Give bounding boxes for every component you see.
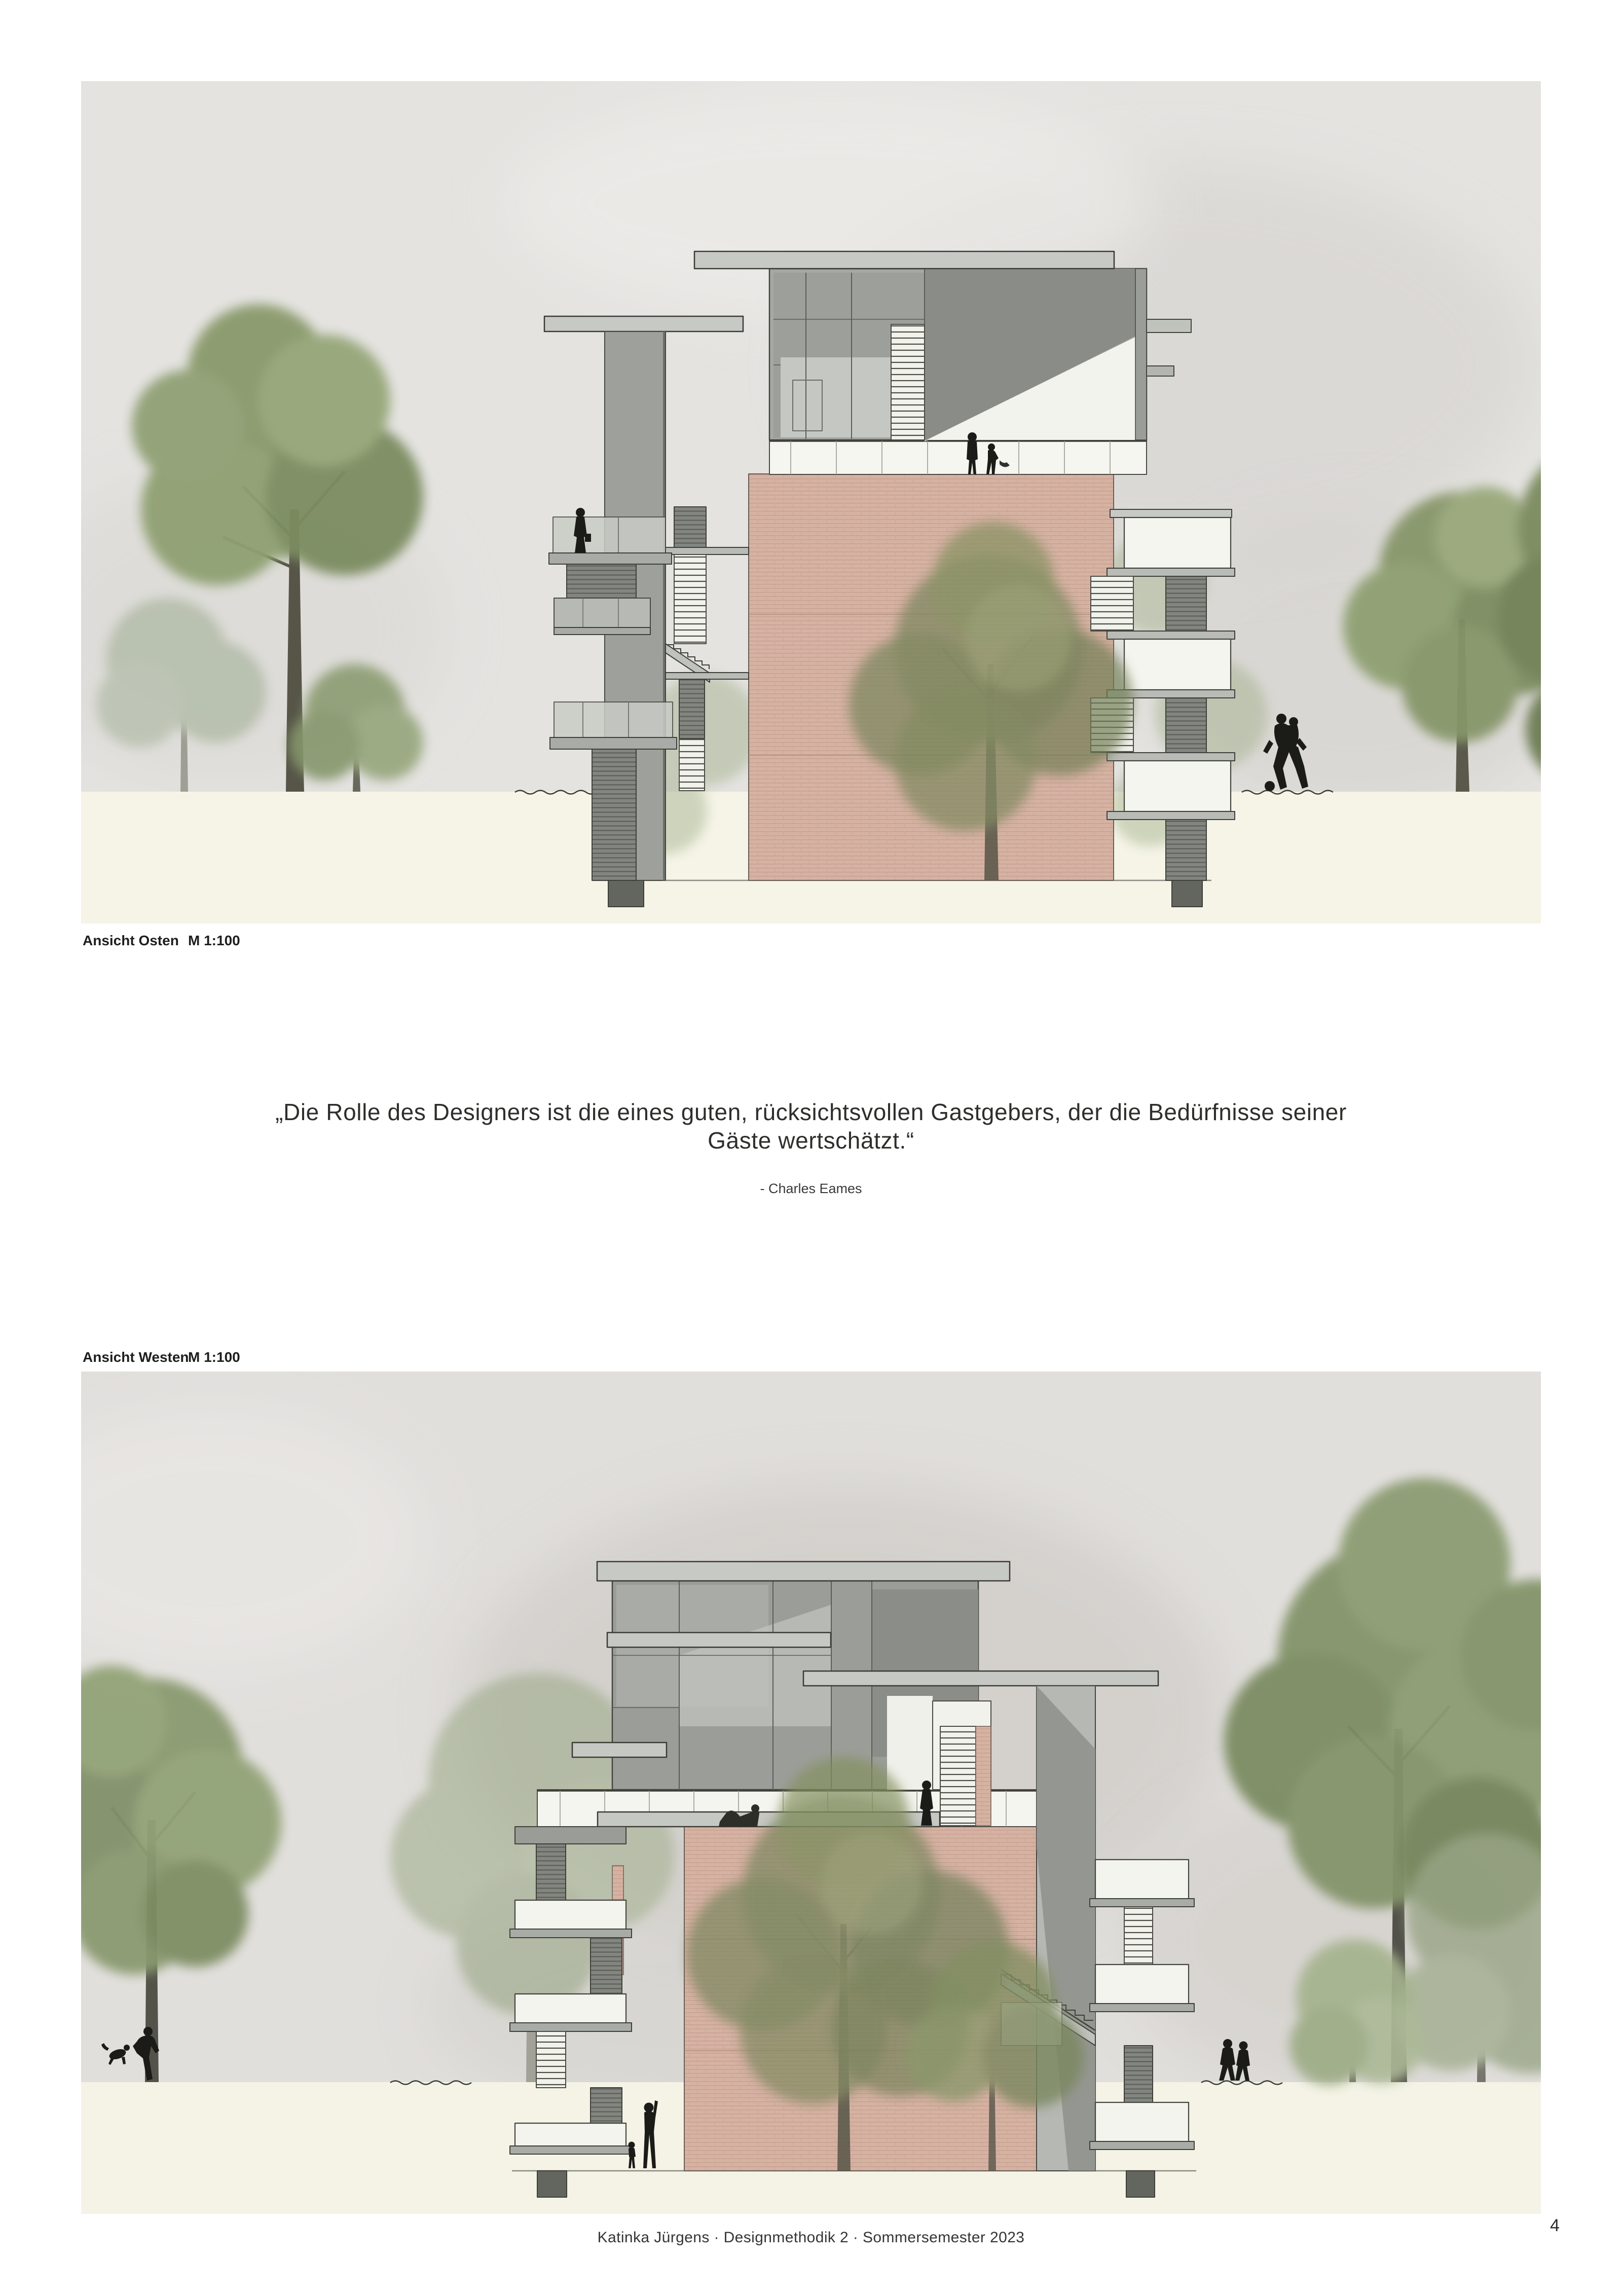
building-east xyxy=(544,251,1235,907)
cantilever-slab-east xyxy=(544,316,743,331)
page-number: 4 xyxy=(1550,2216,1560,2236)
footer-credit: Katinka Jürgens · Designmethodik 2 · Som… xyxy=(0,2229,1622,2246)
label-elevation-east: Ansicht Osten M 1:100 xyxy=(83,933,539,950)
elevation-west-title: Ansicht Westen xyxy=(83,1349,189,1365)
quote-block: „Die Rolle des Designers ist die eines g… xyxy=(0,1098,1622,1197)
elevation-west-drawing xyxy=(81,1372,1541,2214)
slab-b-west xyxy=(803,1671,1158,1686)
terrace-east xyxy=(769,440,1147,474)
roof-slab-east xyxy=(694,251,1114,269)
elevation-east-drawing xyxy=(81,81,1541,923)
roof-slab-west xyxy=(597,1562,1010,1581)
elevation-east-scale: M 1:100 xyxy=(188,933,240,949)
elevation-west-scale: M 1:100 xyxy=(188,1349,240,1365)
slab-c-west xyxy=(572,1743,667,1757)
elevation-east-figure xyxy=(81,81,1541,923)
quote-attribution: - Charles Eames xyxy=(0,1181,1622,1197)
portfolio-page: { "page": { "page_number": "4", "backgro… xyxy=(0,0,1622,2296)
elevation-east-title: Ansicht Osten xyxy=(83,933,179,948)
quote-line-2: Gäste wertschätzt.“ xyxy=(0,1126,1622,1155)
label-elevation-west: Ansicht Westen M 1:100 xyxy=(83,1349,539,1366)
quote-line-1: „Die Rolle des Designers ist die eines g… xyxy=(0,1098,1622,1126)
slab-a-west xyxy=(607,1633,831,1647)
interior-stair-east xyxy=(891,324,925,440)
elevation-west-figure xyxy=(81,1372,1541,2214)
interior-stair-west xyxy=(940,1726,976,1826)
